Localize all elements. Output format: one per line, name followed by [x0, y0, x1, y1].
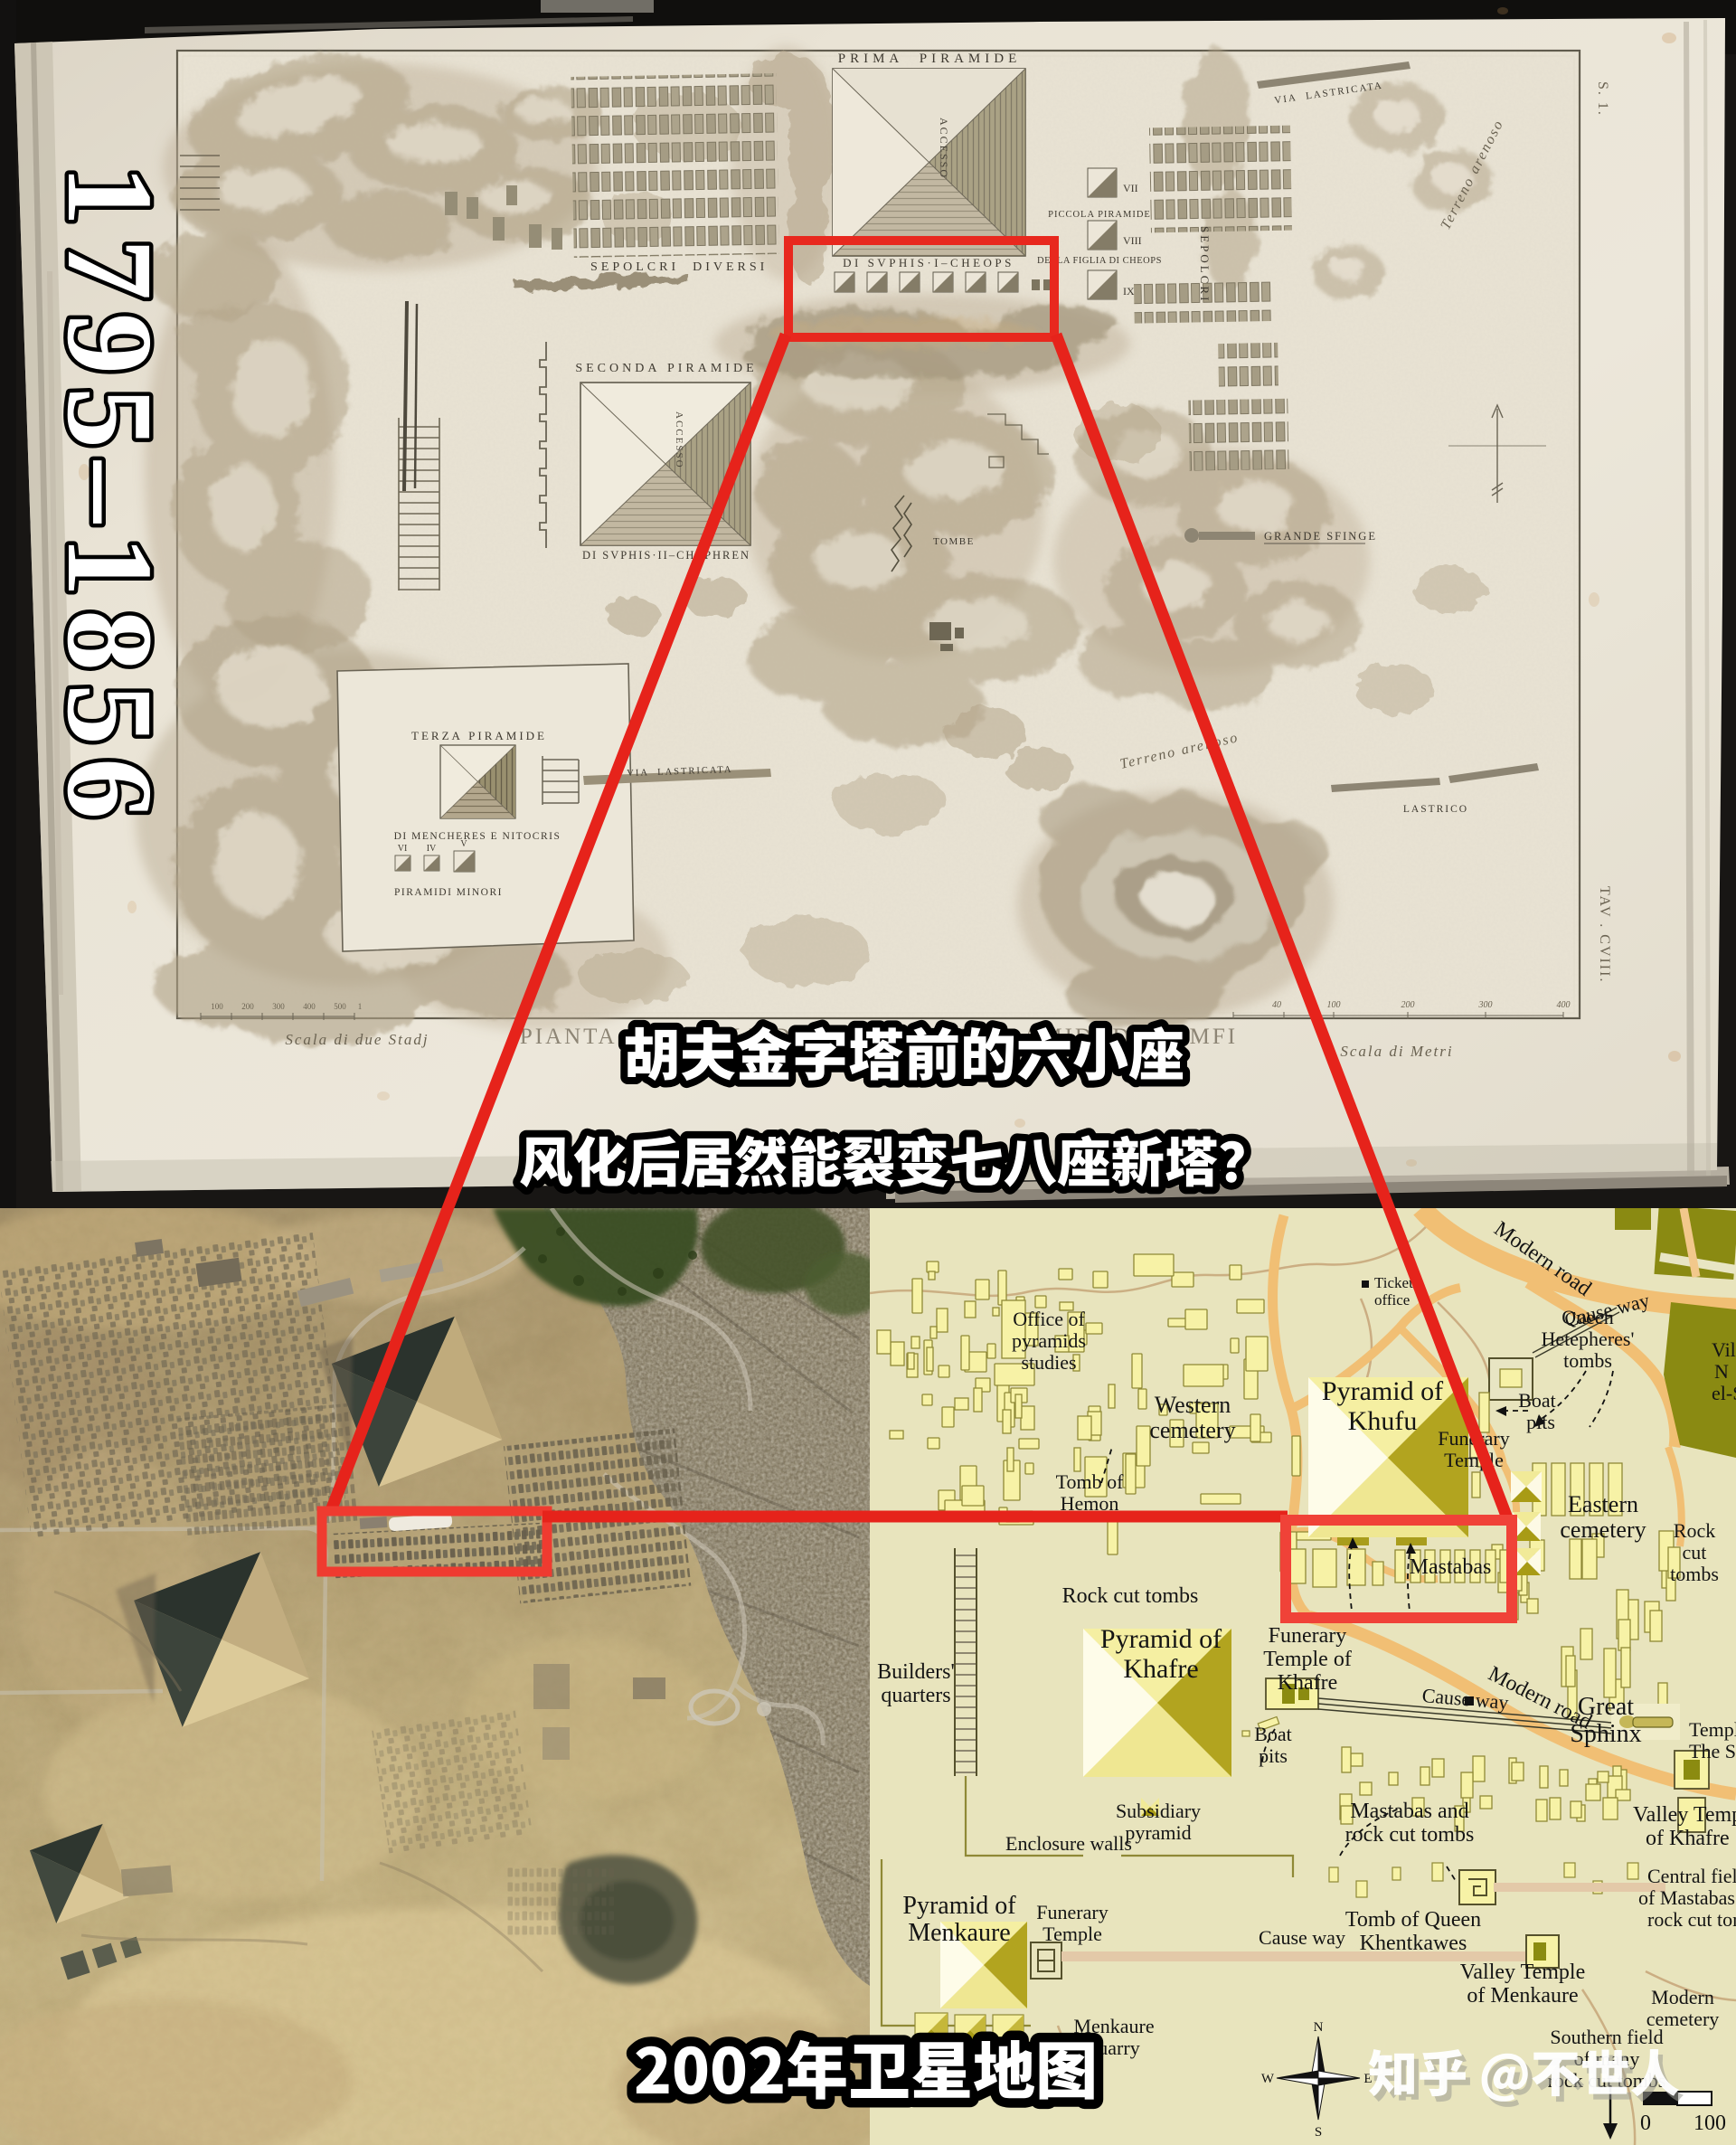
svg-text:V: V — [460, 839, 467, 849]
svg-text:cut: cut — [1683, 1541, 1707, 1564]
svg-text:tombs: tombs — [1670, 1563, 1719, 1585]
svg-text:Funerary: Funerary — [1036, 1901, 1108, 1923]
svg-text:N: N — [1314, 2020, 1324, 2035]
svg-text:The Sph: The Sph — [1689, 1740, 1736, 1762]
svg-text:Cause way: Cause way — [1259, 1926, 1345, 1949]
svg-text:Pyramid of: Pyramid of — [1100, 1624, 1222, 1654]
svg-text:of Menkaure: of Menkaure — [1467, 1984, 1578, 2008]
svg-text:cemetery: cemetery — [1560, 1517, 1646, 1543]
svg-text:VII: VII — [1123, 182, 1138, 194]
svg-text:100: 100 — [1327, 1000, 1341, 1010]
svg-text:300: 300 — [1478, 1000, 1493, 1010]
svg-text:GRANDE SFINGE: GRANDE SFINGE — [1264, 530, 1377, 543]
svg-text:40: 40 — [1272, 1000, 1281, 1010]
svg-text:of Khafre: of Khafre — [1646, 1827, 1730, 1850]
svg-text:Khentkawes: Khentkawes — [1360, 1932, 1467, 1955]
svg-text:S. 1.: S. 1. — [1595, 81, 1610, 117]
svg-text:SEPOLCRI: SEPOLCRI — [1198, 226, 1212, 303]
svg-text:Rock: Rock — [1674, 1519, 1715, 1542]
svg-text:Temple: Temple — [1689, 1718, 1736, 1741]
svg-text:W: W — [1261, 2072, 1275, 2086]
svg-text:Valley Temple: Valley Temple — [1460, 1961, 1586, 1984]
svg-text:TERZA PIRAMIDE: TERZA PIRAMIDE — [411, 729, 547, 742]
svg-text:DI SVPHIS·II–CHEPHREN: DI SVPHIS·II–CHEPHREN — [582, 549, 750, 562]
svg-text:200: 200 — [241, 1002, 254, 1011]
svg-text:Subsidiary: Subsidiary — [1116, 1800, 1201, 1822]
svg-text:TAV . CVIII.: TAV . CVIII. — [1597, 886, 1612, 983]
svg-text:Pyramid of: Pyramid of — [902, 1892, 1016, 1920]
svg-text:400: 400 — [303, 1002, 316, 1011]
svg-text:DI MENCHERES E NITOCRIS: DI MENCHERES E NITOCRIS — [394, 831, 561, 842]
svg-text:100: 100 — [211, 1002, 223, 1011]
svg-text:pits: pits — [1259, 1744, 1288, 1767]
svg-text:Mastabas and: Mastabas and — [1350, 1800, 1468, 1823]
svg-text:0: 0 — [1640, 2112, 1651, 2135]
svg-text:pyramids: pyramids — [1012, 1329, 1086, 1352]
svg-text:VIII: VIII — [1123, 234, 1142, 247]
svg-text:office: office — [1374, 1291, 1410, 1309]
svg-text:Tomb of: Tomb of — [1056, 1470, 1125, 1493]
svg-text:Khufu: Khufu — [1348, 1406, 1418, 1436]
svg-text:Valley Temp: Valley Temp — [1633, 1803, 1736, 1827]
svg-text:Temple of: Temple of — [1263, 1648, 1352, 1671]
svg-text:Central field: Central field — [1647, 1865, 1736, 1887]
svg-text:el-S: el-S — [1712, 1382, 1736, 1404]
svg-text:Southern field: Southern field — [1550, 2026, 1663, 2048]
svg-text:PICCOLA PIRAMIDE: PICCOLA PIRAMIDE — [1048, 210, 1151, 220]
svg-text:Vill: Vill — [1712, 1338, 1736, 1361]
svg-text:Rock cut tombs: Rock cut tombs — [1062, 1584, 1199, 1608]
svg-text:1795–1856: 1795–1856 — [42, 165, 177, 832]
svg-text:DI SVPHIS·I–CHEOPS: DI SVPHIS·I–CHEOPS — [843, 256, 1014, 269]
svg-text:Ticket: Ticket — [1374, 1274, 1413, 1291]
svg-text:N: N — [1714, 1360, 1729, 1383]
svg-text:of Mastabas a: of Mastabas a — [1638, 1886, 1736, 1909]
svg-text:Temple: Temple — [1444, 1449, 1504, 1471]
svg-text:PIRAMIDI MINORI: PIRAMIDI MINORI — [394, 887, 503, 898]
svg-text:Khafre: Khafre — [1278, 1671, 1338, 1695]
svg-text:Tomb of Queen: Tomb of Queen — [1345, 1908, 1481, 1932]
svg-text:Boat: Boat — [1254, 1723, 1292, 1745]
svg-text:IX: IX — [1123, 285, 1135, 298]
svg-text:Western: Western — [1155, 1392, 1231, 1418]
svg-text:Eastern: Eastern — [1568, 1491, 1638, 1517]
svg-text:LASTRICO: LASTRICO — [1403, 804, 1468, 815]
svg-text:rock cut tomb: rock cut tomb — [1647, 1908, 1736, 1931]
svg-text:Temple: Temple — [1043, 1923, 1102, 1945]
svg-text:pyramid: pyramid — [1125, 1821, 1191, 1844]
svg-text:200: 200 — [1401, 1000, 1415, 1010]
svg-text:ACCESSO: ACCESSO — [938, 118, 950, 179]
svg-text:Scala di Metri: Scala di Metri — [1340, 1043, 1453, 1060]
svg-text:Scala di due Stadj: Scala di due Stadj — [285, 1031, 429, 1048]
svg-text:rock cut tombs: rock cut tombs — [1345, 1823, 1475, 1847]
svg-text:VI: VI — [398, 844, 408, 854]
svg-text:Mastabas: Mastabas — [1410, 1555, 1492, 1579]
svg-text:Office of: Office of — [1013, 1308, 1085, 1330]
svg-text:ACCESSO: ACCESSO — [674, 411, 684, 469]
svg-text:tombs: tombs — [1563, 1349, 1612, 1372]
svg-text:PRIMA PIRAMIDE: PRIMA PIRAMIDE — [838, 52, 1022, 66]
svg-text:pits: pits — [1526, 1411, 1555, 1433]
svg-text:TOMBE: TOMBE — [933, 536, 975, 547]
svg-text:500: 500 — [334, 1002, 346, 1011]
svg-text:Hetepheres': Hetepheres' — [1542, 1328, 1635, 1350]
svg-text:IV: IV — [427, 844, 437, 854]
svg-text:S: S — [1315, 2125, 1322, 2140]
svg-text:Menkaure: Menkaure — [908, 1919, 1011, 1947]
svg-text:cemetery: cemetery — [1149, 1417, 1235, 1443]
svg-text:Boat: Boat — [1518, 1389, 1556, 1412]
svg-text:Khafre: Khafre — [1123, 1654, 1198, 1684]
svg-text:Builders': Builders' — [877, 1660, 955, 1684]
svg-text:Enclosure walls: Enclosure walls — [1005, 1832, 1132, 1855]
svg-text:1: 1 — [358, 1002, 363, 1011]
svg-text:Modern: Modern — [1651, 1986, 1714, 2008]
svg-text:SEPOLCRI DIVERSI: SEPOLCRI DIVERSI — [590, 260, 768, 274]
svg-text:studies: studies — [1021, 1351, 1076, 1374]
svg-text:100: 100 — [1694, 2112, 1726, 2135]
svg-text:300: 300 — [272, 1002, 285, 1011]
svg-text:Funerary: Funerary — [1269, 1624, 1347, 1648]
svg-text:Pyramid of: Pyramid of — [1322, 1376, 1443, 1406]
svg-text:SECONDA PIRAMIDE: SECONDA PIRAMIDE — [575, 362, 757, 375]
svg-text:quarters: quarters — [881, 1684, 950, 1707]
svg-text:400: 400 — [1557, 1000, 1571, 1010]
